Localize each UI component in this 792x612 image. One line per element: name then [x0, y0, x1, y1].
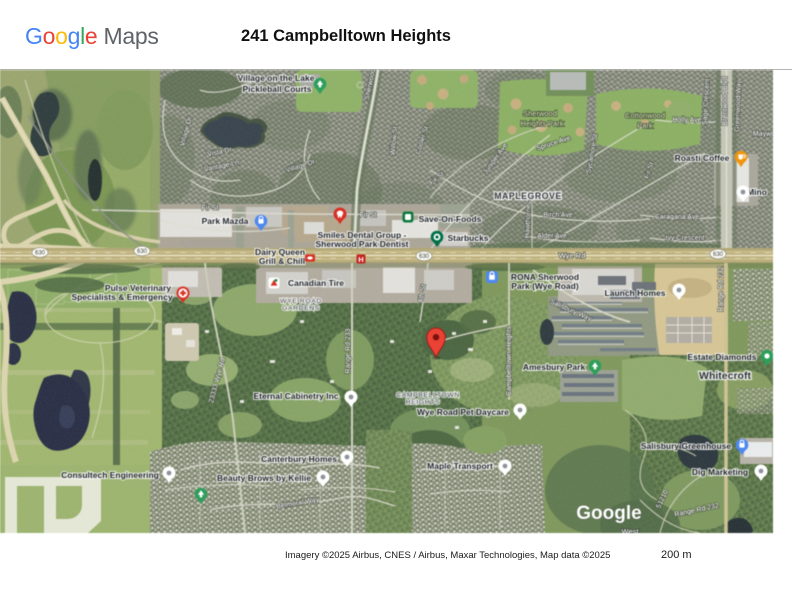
svg-text:Caragana Ave: Caragana Ave — [655, 214, 699, 221]
svg-text:Village on the Lake: Village on the Lake — [238, 73, 315, 83]
svg-text:Wye Rd: Wye Rd — [559, 251, 586, 260]
svg-text:Range Rd 233: Range Rd 233 — [345, 328, 352, 373]
svg-text:Canterbury Homes: Canterbury Homes — [261, 454, 337, 464]
svg-text:Range Rd 232: Range Rd 232 — [718, 266, 725, 311]
svg-text:H: H — [358, 255, 363, 264]
svg-text:630: 630 — [137, 249, 148, 255]
svg-text:Park (Wye Road): Park (Wye Road) — [511, 281, 579, 291]
svg-text:GARDENS: GARDENS — [282, 305, 320, 312]
svg-text:Salisbury Greenhouse: Salisbury Greenhouse — [641, 441, 731, 451]
svg-text:Dig Marketing: Dig Marketing — [692, 467, 748, 477]
svg-text:Alder Ave: Alder Ave — [537, 233, 567, 240]
svg-text:Eternal Cabinetry Inc: Eternal Cabinetry Inc — [253, 391, 338, 401]
svg-text:630: 630 — [35, 251, 46, 257]
svg-text:Fir St: Fir St — [360, 212, 377, 219]
svg-text:Heights Park: Heights Park — [521, 119, 564, 128]
svg-text:Maywo: Maywo — [753, 131, 773, 138]
svg-text:Sherwood: Sherwood — [523, 109, 557, 118]
svg-text:CAMPBELLTOWN: CAMPBELLTOWN — [396, 392, 460, 399]
svg-text:Wye Road Pet Daycare: Wye Road Pet Daycare — [417, 407, 509, 417]
svg-text:Starbucks: Starbucks — [447, 233, 488, 243]
svg-text:Specialists & Emergency: Specialists & Emergency — [71, 292, 172, 302]
svg-text:MAPLEGROVE: MAPLEGROVE — [494, 191, 562, 201]
svg-text:630: 630 — [713, 252, 724, 258]
svg-text:Google: Google — [576, 503, 641, 524]
svg-text:Birch Ave: Birch Ave — [543, 212, 573, 219]
svg-text:Beauty Brows by Kellie: Beauty Brows by Kellie — [217, 473, 311, 483]
svg-text:Pickleball Courts: Pickleball Courts — [243, 84, 312, 94]
svg-text:Whitecroft: Whitecroft — [699, 370, 751, 382]
svg-text:Grill & Chill: Grill & Chill — [259, 256, 305, 266]
svg-text:West: West — [622, 527, 640, 533]
svg-text:Ivy Crescent: Ivy Crescent — [666, 235, 705, 242]
svg-text:Canadian Tire: Canadian Tire — [288, 278, 344, 288]
svg-text:Estate Diamonds: Estate Diamonds — [688, 352, 757, 362]
svg-text:Park: Park — [637, 121, 653, 130]
svg-text:Launch Homes: Launch Homes — [605, 288, 666, 298]
svg-text:WYE ROAD: WYE ROAD — [280, 298, 322, 305]
svg-text:Maple Transport: Maple Transport — [427, 461, 493, 471]
svg-text:Hawthorne St: Hawthorne St — [524, 196, 532, 239]
svg-text:Campbelltown Heights: Campbelltown Heights — [506, 325, 513, 396]
svg-text:Mino: Mino — [747, 187, 767, 197]
svg-text:Cottonwood: Cottonwood — [625, 111, 665, 120]
svg-text:Consultech Engineering: Consultech Engineering — [61, 470, 159, 480]
svg-text:Save-On-Foods: Save-On-Foods — [419, 214, 482, 224]
svg-text:Brentwood Blvd: Brentwood Blvd — [722, 76, 729, 125]
svg-text:HEIGHTS: HEIGHTS — [406, 399, 440, 406]
svg-text:630: 630 — [419, 254, 430, 260]
svg-text:Holly Ave: Holly Ave — [672, 117, 701, 124]
svg-text:Roasti Coffee: Roasti Coffee — [675, 153, 730, 163]
svg-text:Fir St: Fir St — [202, 205, 219, 212]
svg-text:Amesbury Park: Amesbury Park — [523, 362, 586, 372]
svg-text:Sherwood Park Dentist: Sherwood Park Dentist — [315, 239, 408, 249]
svg-text:Park Mazda: Park Mazda — [202, 216, 249, 226]
